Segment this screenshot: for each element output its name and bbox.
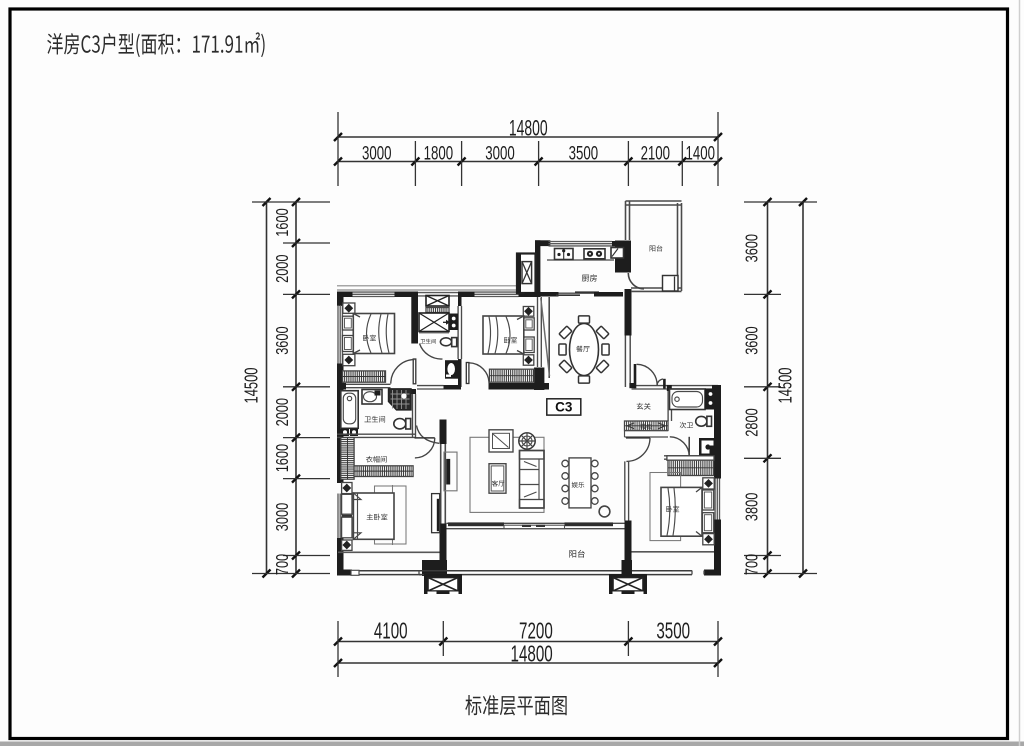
svg-text:3000: 3000 <box>485 142 514 164</box>
svg-text:3800: 3800 <box>743 492 763 521</box>
svg-text:2100: 2100 <box>641 142 670 164</box>
svg-text:700: 700 <box>743 554 763 576</box>
svg-text:3600: 3600 <box>743 234 763 263</box>
svg-text:3000: 3000 <box>273 503 293 532</box>
svg-text:1600: 1600 <box>273 208 293 237</box>
svg-text:3600: 3600 <box>743 326 763 355</box>
svg-text:2800: 2800 <box>743 408 763 437</box>
svg-text:2000: 2000 <box>273 254 293 283</box>
svg-text:1800: 1800 <box>424 142 453 164</box>
svg-text:14800: 14800 <box>511 641 553 667</box>
svg-text:14500: 14500 <box>242 367 262 403</box>
svg-text:14800: 14800 <box>509 115 548 140</box>
svg-text:3600: 3600 <box>273 326 293 355</box>
svg-text:3500: 3500 <box>656 618 690 644</box>
svg-text:3500: 3500 <box>569 142 598 164</box>
svg-text:1600: 1600 <box>273 444 293 473</box>
svg-text:4100: 4100 <box>374 618 408 644</box>
svg-text:700: 700 <box>273 554 293 576</box>
svg-text:14500: 14500 <box>776 367 796 403</box>
svg-text:C3: C3 <box>555 400 573 415</box>
svg-text:2000: 2000 <box>273 398 293 427</box>
svg-text:1400: 1400 <box>685 142 714 164</box>
svg-text:3000: 3000 <box>362 142 391 164</box>
